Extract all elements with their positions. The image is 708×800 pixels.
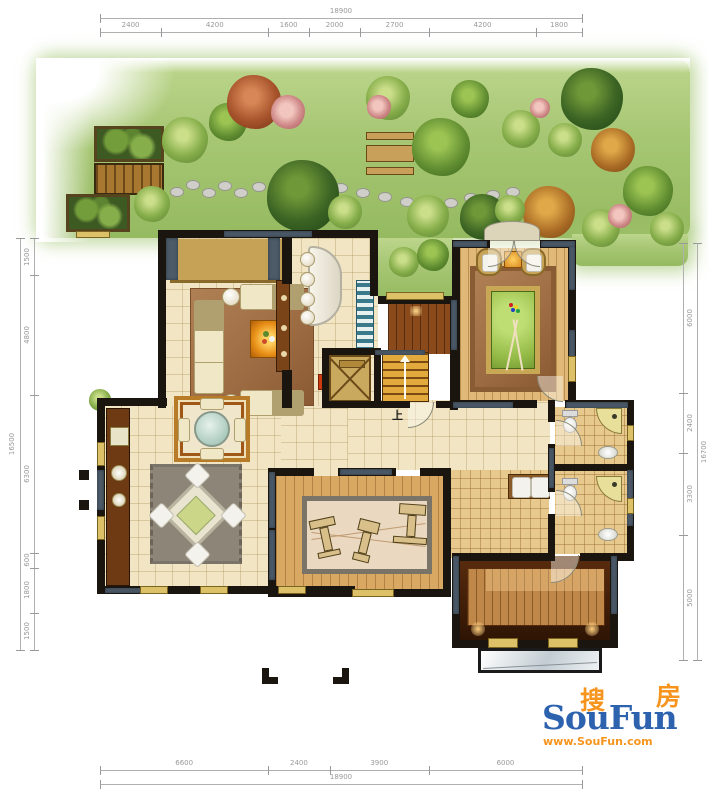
dimension-tick	[536, 28, 537, 37]
dimension-value: 4800	[23, 326, 31, 344]
dimension-tick	[268, 766, 269, 775]
dining-chair	[234, 418, 246, 442]
bush	[407, 195, 449, 237]
wall-segment	[262, 677, 278, 684]
dimension-line	[100, 784, 582, 785]
dimension-tick	[429, 28, 430, 37]
bar-stool	[300, 292, 315, 307]
entry-steps-wood	[467, 568, 605, 626]
wall-accent	[268, 238, 280, 280]
dimension-tick	[30, 568, 39, 569]
dimension-value: 2400	[290, 759, 308, 767]
dimension-tick	[16, 650, 25, 651]
dimension-tick	[161, 28, 162, 37]
window	[386, 292, 444, 300]
picnic-table	[366, 145, 414, 162]
wall-accent	[611, 556, 617, 614]
dimension-tick	[679, 660, 688, 661]
dimension-tick	[16, 238, 25, 239]
dimension-tick	[330, 766, 331, 775]
bay-platform	[170, 239, 282, 283]
window	[488, 638, 518, 648]
wall-segment	[322, 348, 329, 408]
dimension-tick	[693, 660, 702, 661]
flower-bush	[367, 95, 391, 119]
dimension-value: 2400	[686, 414, 694, 432]
dimension-value: 600	[23, 553, 31, 566]
dimension-tick	[30, 238, 39, 239]
stepping-stone	[378, 192, 392, 202]
dimension-value: 2700	[386, 21, 404, 29]
dimension-value: 1600	[280, 21, 298, 29]
dimension-value: 6300	[23, 465, 31, 483]
garden-planter-box	[66, 194, 130, 232]
dimension-value: 6000	[686, 309, 694, 327]
wall-accent	[451, 300, 457, 350]
dimension-value: 3300	[686, 485, 694, 503]
dimension-line	[683, 243, 684, 660]
hall-bench	[508, 474, 550, 499]
dimension-value: 16700	[700, 440, 708, 462]
wall-accent	[453, 402, 513, 408]
dimension-tick	[679, 535, 688, 536]
wall-segment	[548, 400, 555, 422]
stepping-stone	[234, 188, 248, 198]
foyer-lamp	[410, 306, 422, 316]
dimension-value: 5000	[686, 589, 694, 607]
dimension-tick	[679, 243, 688, 244]
sideboard-plate	[112, 493, 126, 507]
window	[568, 356, 576, 382]
window	[140, 586, 168, 594]
dimension-line	[697, 243, 698, 660]
wall-accent	[269, 530, 275, 580]
flower-decor	[262, 339, 267, 344]
dimension-value: 2000	[326, 21, 344, 29]
cabinet-item	[281, 295, 287, 301]
dimension-value: 16500	[8, 433, 16, 455]
stair-direction-label: 上	[392, 407, 403, 423]
sofa-top	[240, 284, 304, 310]
side-table	[222, 288, 240, 306]
wall-segment	[374, 401, 410, 408]
logo-cn-fang: 房	[656, 677, 681, 713]
stair-arrow-line	[404, 361, 406, 399]
bush	[328, 195, 362, 229]
wall-accent	[340, 469, 392, 475]
bar-stool	[300, 252, 315, 267]
window	[278, 586, 306, 594]
dimension-line	[100, 18, 582, 19]
wall-segment	[548, 464, 634, 471]
flower-decor	[263, 331, 269, 337]
dimension-tick	[30, 395, 39, 396]
stepping-stone	[202, 188, 216, 198]
bar-stool	[300, 272, 315, 287]
porch-light	[471, 622, 485, 636]
entry-canopy	[478, 648, 602, 673]
window	[97, 516, 105, 540]
dimension-tick	[30, 275, 39, 276]
window	[627, 425, 634, 441]
dimension-value: 3900	[370, 759, 388, 767]
dimension-tick	[582, 28, 583, 37]
billiard-ball	[511, 308, 515, 312]
dimension-tick	[100, 766, 101, 775]
dimension-tick	[582, 780, 583, 789]
tea-table-top	[176, 496, 216, 536]
wall-accent	[97, 470, 104, 510]
tree	[267, 160, 339, 232]
window	[352, 589, 394, 597]
tree	[623, 166, 673, 216]
wall-accent	[269, 472, 275, 528]
billiard-cue	[513, 319, 524, 371]
dining-chair	[178, 418, 190, 442]
dimension-tick	[30, 650, 39, 651]
wall-segment	[452, 553, 554, 561]
dimension-value: 18900	[330, 7, 352, 15]
floor-plan-canvas: 上	[0, 0, 708, 800]
display-cabinet	[276, 280, 290, 372]
stair-arrow-head	[400, 355, 410, 362]
dimension-value: 2400	[122, 21, 140, 29]
dimension-value: 4200	[474, 21, 492, 29]
dimension-tick	[309, 28, 310, 37]
wall-segment	[370, 230, 378, 296]
wall-segment	[282, 370, 292, 408]
dimension-tick	[268, 28, 269, 37]
porch-light	[585, 622, 599, 636]
flower-bush	[608, 204, 632, 228]
window	[97, 442, 105, 466]
tree	[561, 68, 623, 130]
bush	[134, 186, 170, 222]
sink	[598, 446, 618, 459]
window	[76, 231, 110, 238]
wall-segment	[322, 348, 380, 355]
dimension-tick	[679, 453, 688, 454]
dimension-tick	[100, 14, 101, 23]
billiard-ball	[509, 303, 513, 307]
stepping-stone	[186, 180, 200, 190]
logo-url-text: www.SouFun.com	[543, 735, 653, 748]
dimension-line	[34, 238, 35, 650]
wall-segment	[79, 500, 89, 510]
wall-segment	[443, 468, 451, 597]
dimension-tick	[30, 613, 39, 614]
wall-segment	[79, 470, 89, 480]
stepping-stone	[218, 181, 232, 191]
bench-seat	[366, 132, 414, 140]
sideboard	[106, 408, 130, 586]
dimension-tick	[693, 243, 702, 244]
bench-seat	[366, 167, 414, 175]
corridor-floor	[348, 400, 550, 470]
dimension-line	[20, 238, 21, 650]
entry-steps-arc	[484, 221, 540, 241]
wall-segment	[158, 230, 166, 408]
dimension-tick	[429, 766, 430, 775]
dimension-value: 6600	[175, 759, 193, 767]
wall-accent	[453, 241, 487, 247]
dimension-value: 1800	[23, 581, 31, 599]
wall-segment	[580, 553, 634, 561]
logo-cn-sou: 搜	[580, 681, 605, 717]
dimension-tick	[100, 28, 101, 37]
stepping-stone	[356, 188, 370, 198]
bush	[591, 128, 635, 172]
wall-accent	[375, 350, 425, 355]
dimension-tick	[360, 28, 361, 37]
dimension-tick	[679, 393, 688, 394]
soufun-logo: SouFun 搜 房 www.SouFun.com	[540, 688, 708, 754]
tree	[451, 80, 489, 118]
stepping-stone	[170, 187, 184, 197]
wall-segment	[452, 640, 618, 648]
sofa-left	[194, 300, 224, 394]
wall-accent	[224, 231, 312, 237]
garden-planter-box	[94, 126, 164, 162]
dimension-value: 6000	[497, 759, 515, 767]
wall-accent	[549, 448, 554, 488]
sideboard-item	[110, 427, 129, 446]
dimension-tick	[100, 780, 101, 789]
tree	[412, 118, 470, 176]
entry-platform	[453, 556, 617, 642]
wall-segment	[322, 401, 380, 408]
wall-segment	[374, 348, 381, 408]
window	[548, 638, 578, 648]
wall-accent	[453, 556, 459, 614]
sink	[598, 528, 618, 541]
elevator	[329, 355, 371, 402]
dimension-value: 1500	[23, 248, 31, 266]
cabinet-item	[281, 351, 287, 357]
staircase	[382, 352, 429, 402]
cabinet-item	[281, 325, 287, 331]
bush	[548, 123, 582, 157]
dimension-tick	[30, 553, 39, 554]
window	[627, 498, 634, 514]
flower-bush	[530, 98, 550, 118]
dimension-value: 4200	[206, 21, 224, 29]
bar-stool	[300, 310, 315, 325]
bench-cushion	[512, 477, 531, 498]
weight-bench	[392, 501, 431, 549]
bush	[162, 117, 208, 163]
dining-chair	[200, 398, 224, 410]
wall-segment	[333, 677, 349, 684]
bush	[650, 212, 684, 246]
wall-accent	[566, 402, 628, 408]
flower-bush	[271, 95, 305, 129]
tree	[417, 239, 449, 271]
dimension-tick	[582, 766, 583, 775]
hall-floor	[280, 406, 348, 476]
billiard-table	[486, 286, 540, 374]
dimension-value: 1500	[23, 622, 31, 640]
dimension-line	[100, 32, 582, 33]
dimension-line	[100, 770, 582, 771]
wall-accent	[166, 238, 178, 280]
window	[200, 586, 228, 594]
dimension-value: 18900	[330, 773, 352, 781]
wall-accent	[569, 246, 575, 290]
wall-segment	[282, 238, 292, 284]
bush	[389, 247, 419, 277]
flower-decor	[269, 336, 275, 342]
stepping-stone	[252, 182, 266, 192]
billiard-ball	[516, 309, 520, 313]
dimension-tick	[582, 14, 583, 23]
dimension-value: 1800	[550, 21, 568, 29]
dining-table	[194, 411, 230, 447]
sideboard-plate	[111, 465, 127, 481]
wall-segment	[97, 398, 167, 406]
dining-chair	[200, 448, 224, 460]
